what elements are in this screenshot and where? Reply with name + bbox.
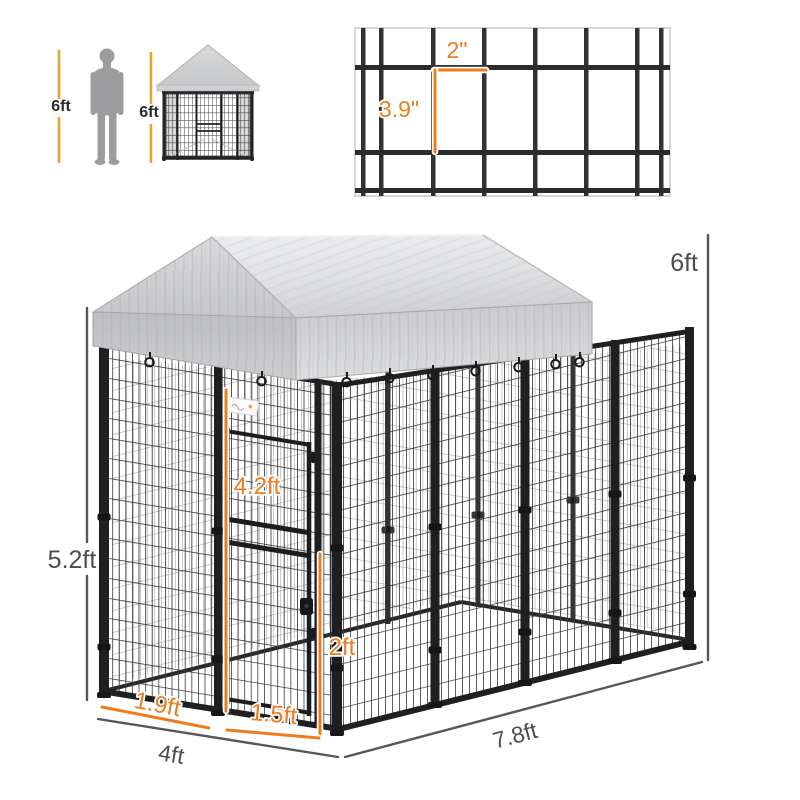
main-kennel-diagram: 6ft 5.2ft 4.2ft 2ft 1.9ft 1.5ft xyxy=(48,235,708,769)
front-wall xyxy=(97,342,344,736)
mesh-height-label: 3.9" xyxy=(379,96,419,122)
door-height-label: 4.2ft xyxy=(234,473,281,500)
front-width-label: 4ft xyxy=(157,739,187,769)
side-depth-label: 7.8ft xyxy=(490,717,541,754)
door-latch xyxy=(300,598,313,615)
total-height-label: 6ft xyxy=(670,249,698,277)
wall-height-label: 5.2ft xyxy=(48,546,97,574)
dimension-front-width: 4ft xyxy=(98,719,338,769)
kennel-height-label: 6ft xyxy=(139,104,159,121)
scale-kennel-figure: 6ft xyxy=(139,45,259,163)
diagram-canvas: 6ft 6ft xyxy=(0,0,800,800)
side-wall xyxy=(339,327,697,729)
door-bottom-width-label: 1.5ft xyxy=(249,699,298,730)
mesh-detail-panel: 2" 3.9" xyxy=(355,28,670,196)
door-width-label: 2ft xyxy=(329,634,356,661)
human-height-label: 6ft xyxy=(51,98,71,115)
mesh-width-label: 2" xyxy=(447,37,468,63)
human-silhouette xyxy=(91,49,124,166)
product-dimension-diagram: 6ft 6ft xyxy=(0,0,800,800)
scale-human-figure: 6ft xyxy=(51,49,123,166)
dimension-wall-height: 5.2ft xyxy=(48,308,97,700)
kennel-front-view xyxy=(157,45,259,161)
